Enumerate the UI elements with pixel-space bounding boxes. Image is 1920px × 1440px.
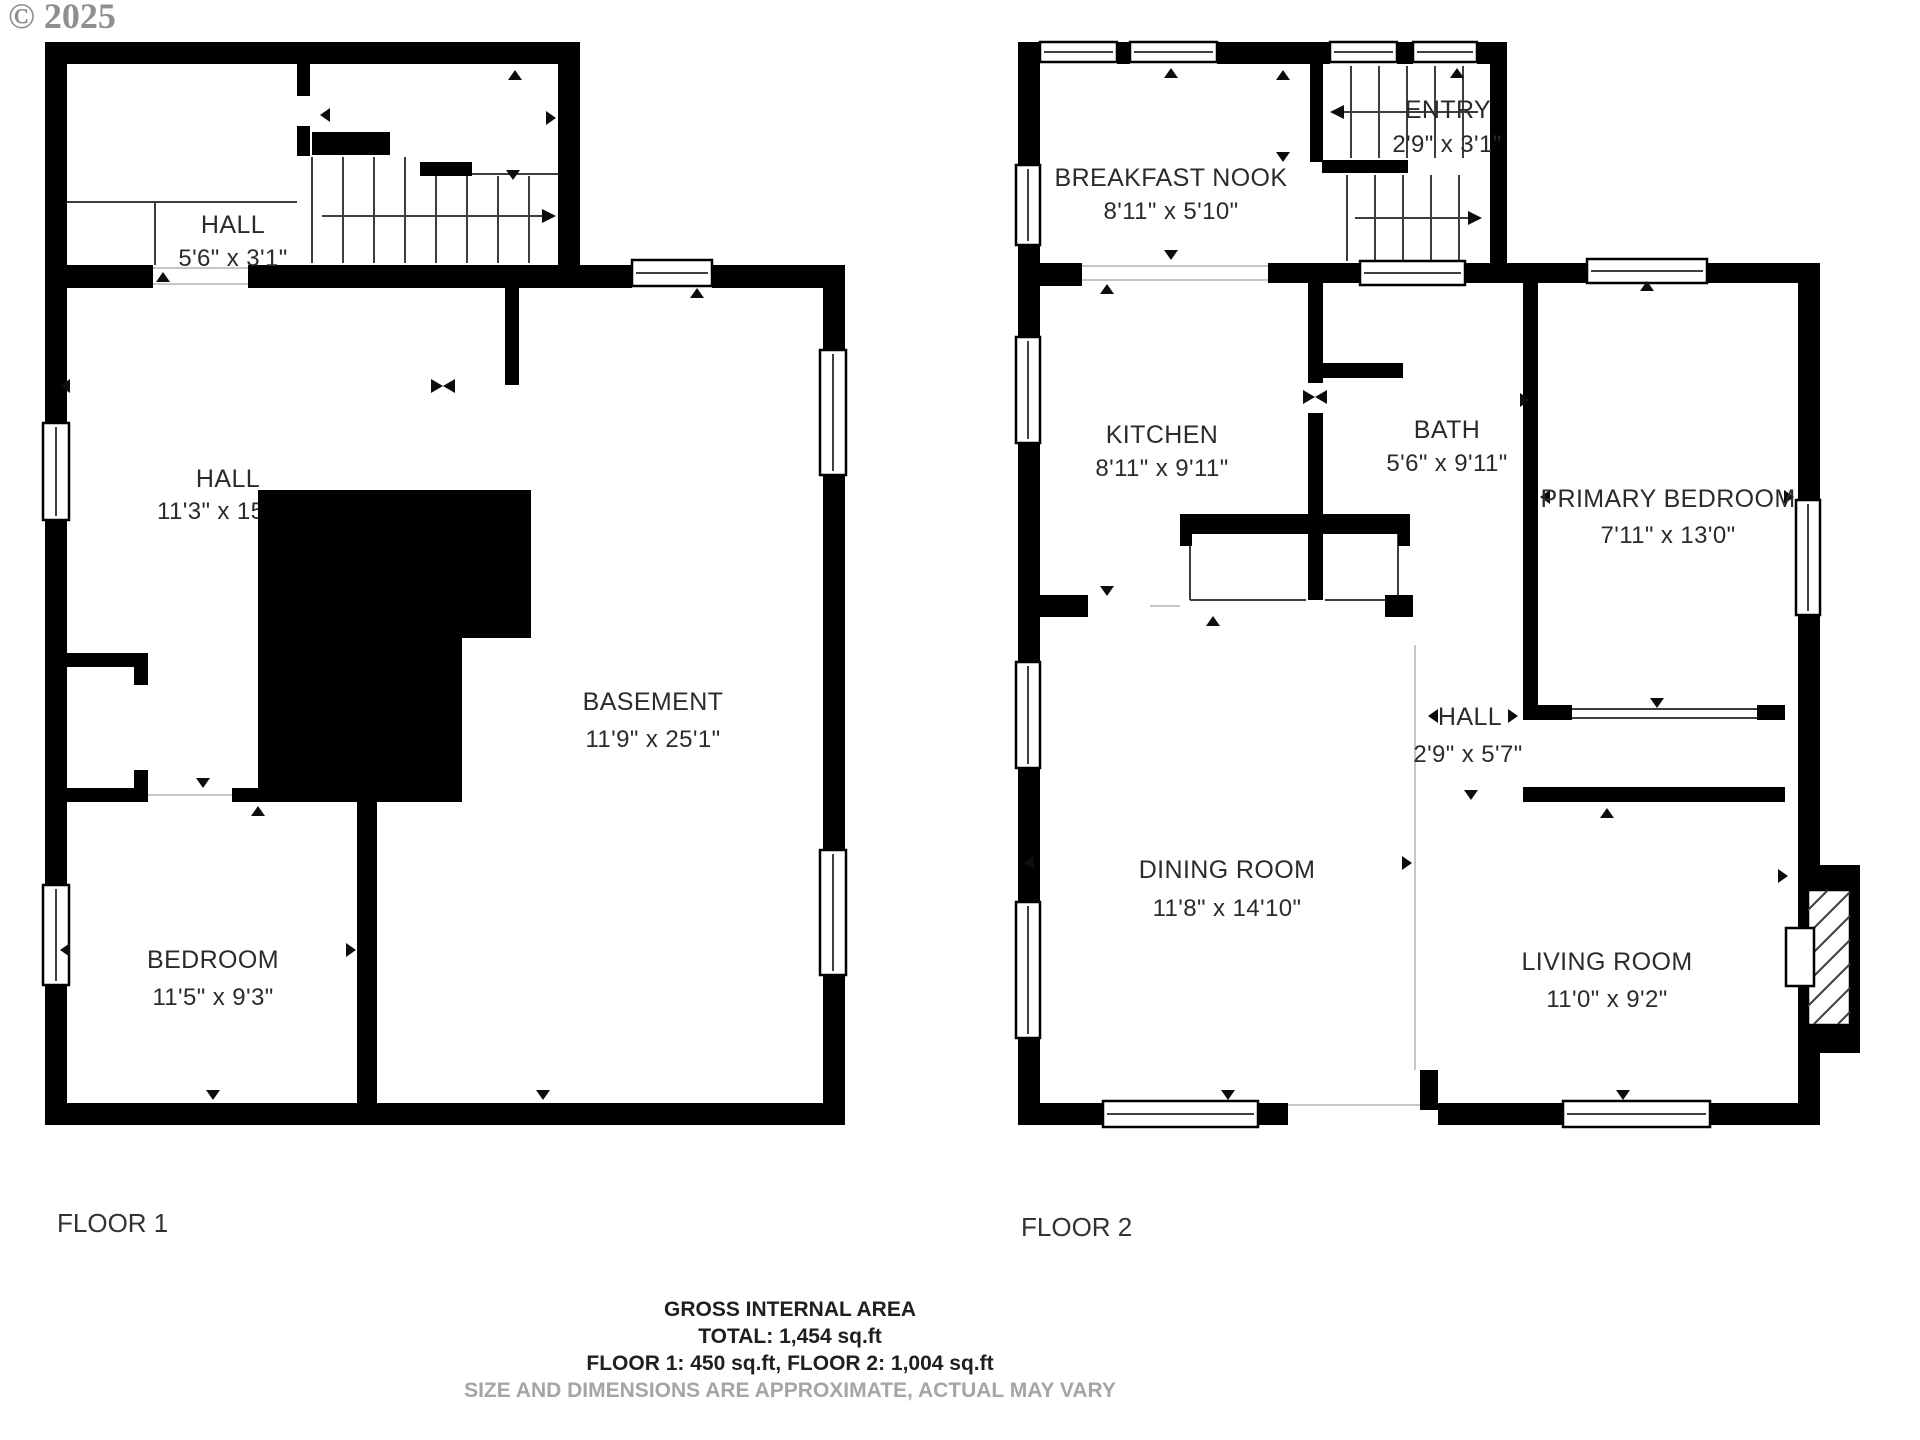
room-label-hall-main: HALL bbox=[196, 465, 260, 493]
room-dims-bedroom: 11'5" x 9'3" bbox=[152, 984, 273, 1011]
room-dims-hall2: 2'9" x 5'7" bbox=[1413, 741, 1522, 768]
room-label-bedroom: BEDROOM bbox=[147, 946, 279, 974]
door-swing-icon bbox=[431, 379, 443, 393]
redacted-area bbox=[258, 490, 531, 802]
window bbox=[632, 260, 712, 286]
window bbox=[1130, 42, 1217, 62]
fireplace bbox=[1786, 890, 1850, 1025]
room-label-dining-room: DINING ROOM bbox=[1139, 856, 1316, 884]
room-label-hall-upper: HALL bbox=[201, 211, 265, 239]
room-label-primary-bedroom: PRIMARY BEDROOM bbox=[1540, 485, 1795, 513]
copyright-watermark: © 2025 bbox=[8, 0, 116, 36]
window bbox=[1587, 259, 1707, 283]
window bbox=[820, 850, 846, 975]
floor1-caption: FLOOR 1 bbox=[57, 1208, 168, 1238]
window bbox=[1796, 500, 1820, 615]
footer-total-area: TOTAL: 1,454 sq.ft bbox=[698, 1325, 882, 1348]
room-label-living-room: LIVING ROOM bbox=[1521, 948, 1692, 976]
room-label-breakfast-nook: BREAKFAST NOOK bbox=[1055, 164, 1288, 192]
room-dims-hall-main: 11'3" x 15 bbox=[157, 498, 264, 525]
floorplan-canvas: © 2025 bbox=[0, 0, 1920, 1440]
room-dims-breakfast-nook: 8'11" x 5'10" bbox=[1103, 198, 1238, 225]
room-dims-living-room: 11'0" x 9'2" bbox=[1546, 986, 1667, 1013]
room-label-entry: ENTRY bbox=[1405, 96, 1491, 124]
room-label-basement: BASEMENT bbox=[583, 688, 724, 716]
stair-landing-wall bbox=[312, 132, 390, 155]
room-dims-bath: 5'6" x 9'11" bbox=[1386, 450, 1507, 477]
window bbox=[1040, 42, 1117, 62]
footer-gross-area-title: GROSS INTERNAL AREA bbox=[664, 1298, 916, 1321]
floor2-caption: FLOOR 2 bbox=[1021, 1212, 1132, 1242]
floor2-labels: BREAKFAST NOOK 8'11" x 5'10" ENTRY 2'9" … bbox=[1055, 96, 1796, 1013]
floor2-plan: BREAKFAST NOOK 8'11" x 5'10" ENTRY 2'9" … bbox=[1016, 42, 1860, 1242]
window bbox=[1413, 42, 1477, 62]
footer-floor-areas: FLOOR 1: 450 sq.ft, FLOOR 2: 1,004 sq.ft bbox=[586, 1352, 993, 1375]
window bbox=[1016, 337, 1040, 443]
window bbox=[1016, 165, 1040, 245]
window bbox=[1563, 1101, 1710, 1127]
room-dims-dining-room: 11'8" x 14'10" bbox=[1153, 895, 1302, 922]
room-dims-kitchen: 8'11" x 9'11" bbox=[1095, 455, 1228, 482]
room-dims-entry: 2'9" x 3'1" bbox=[1392, 131, 1501, 158]
window bbox=[43, 885, 69, 985]
door-swing-icon bbox=[1303, 390, 1315, 404]
stairs-up-arrow bbox=[1330, 105, 1344, 119]
floorplan-page: © 2025 bbox=[0, 0, 1920, 1440]
pantry-closet-wall bbox=[1180, 514, 1410, 534]
footer-disclaimer: SIZE AND DIMENSIONS ARE APPROXIMATE, ACT… bbox=[464, 1379, 1116, 1402]
window bbox=[1360, 261, 1465, 285]
room-label-kitchen: KITCHEN bbox=[1106, 421, 1219, 449]
window bbox=[1016, 662, 1040, 768]
stairs-direction-arrow bbox=[542, 209, 556, 223]
room-dims-hall-upper: 5'6" x 3'1" bbox=[178, 245, 287, 272]
floor1-plan: HALL 5'6" x 3'1" HALL 11'3" x 15 BASEMEN… bbox=[43, 42, 846, 1238]
footer-summary: GROSS INTERNAL AREA TOTAL: 1,454 sq.ft F… bbox=[464, 1298, 1116, 1402]
room-label-hall2: HALL bbox=[1438, 703, 1502, 731]
stairs-down-arrow bbox=[1468, 211, 1482, 225]
window bbox=[1103, 1101, 1258, 1127]
window bbox=[1016, 902, 1040, 1038]
room-dims-primary-bedroom: 7'11" x 13'0" bbox=[1600, 522, 1735, 549]
window bbox=[43, 423, 69, 520]
room-label-bath: BATH bbox=[1414, 416, 1480, 444]
window bbox=[820, 350, 846, 475]
room-dims-basement: 11'9" x 25'1" bbox=[585, 726, 720, 753]
window bbox=[1330, 42, 1397, 62]
